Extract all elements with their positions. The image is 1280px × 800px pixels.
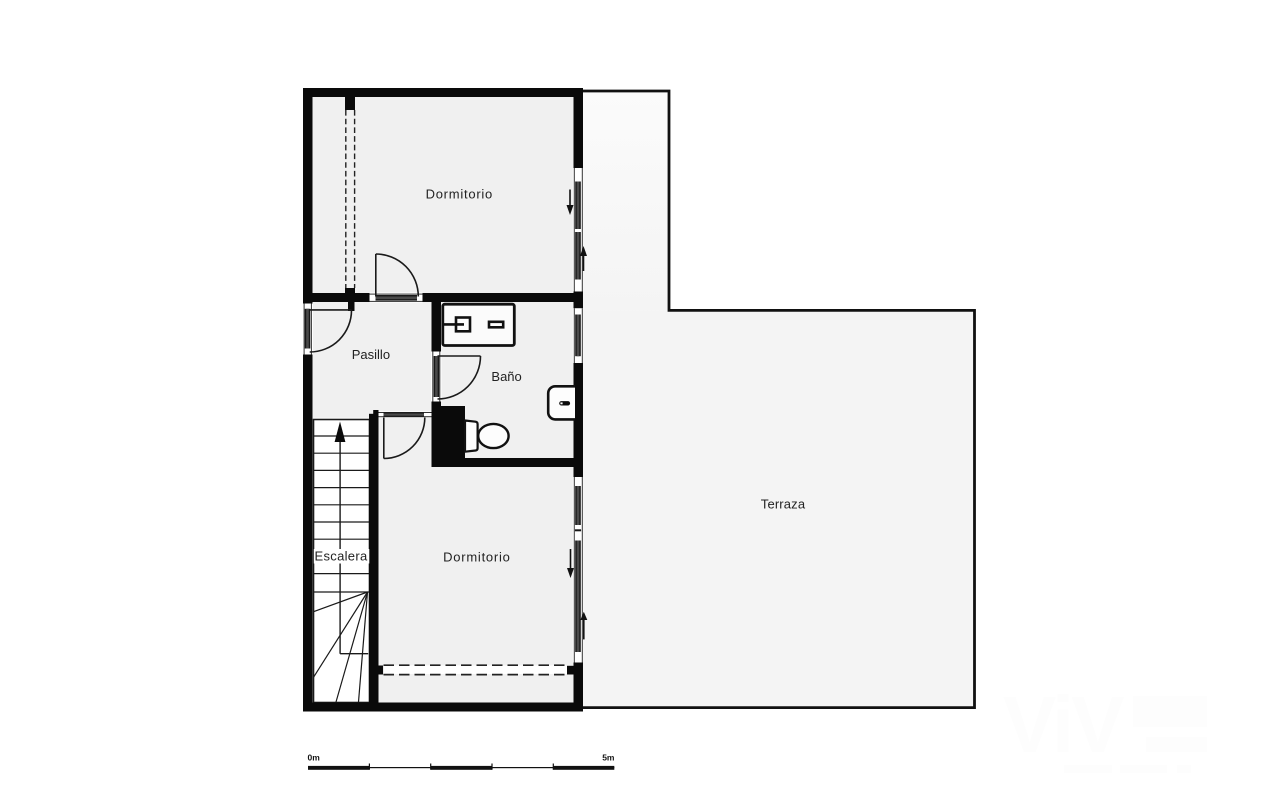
svg-text:Escalera: Escalera [315,549,368,564]
svg-text:Baño: Baño [491,369,521,384]
svg-text:ViV: ViV [1003,680,1124,769]
svg-text:5m: 5m [602,753,615,763]
svg-text:Pasillo: Pasillo [352,347,390,362]
svg-text:Terraza: Terraza [761,497,806,512]
svg-text:Dormitorio: Dormitorio [426,186,493,201]
svg-text:0m: 0m [308,753,321,763]
svg-text:Dormitorio: Dormitorio [443,549,510,564]
